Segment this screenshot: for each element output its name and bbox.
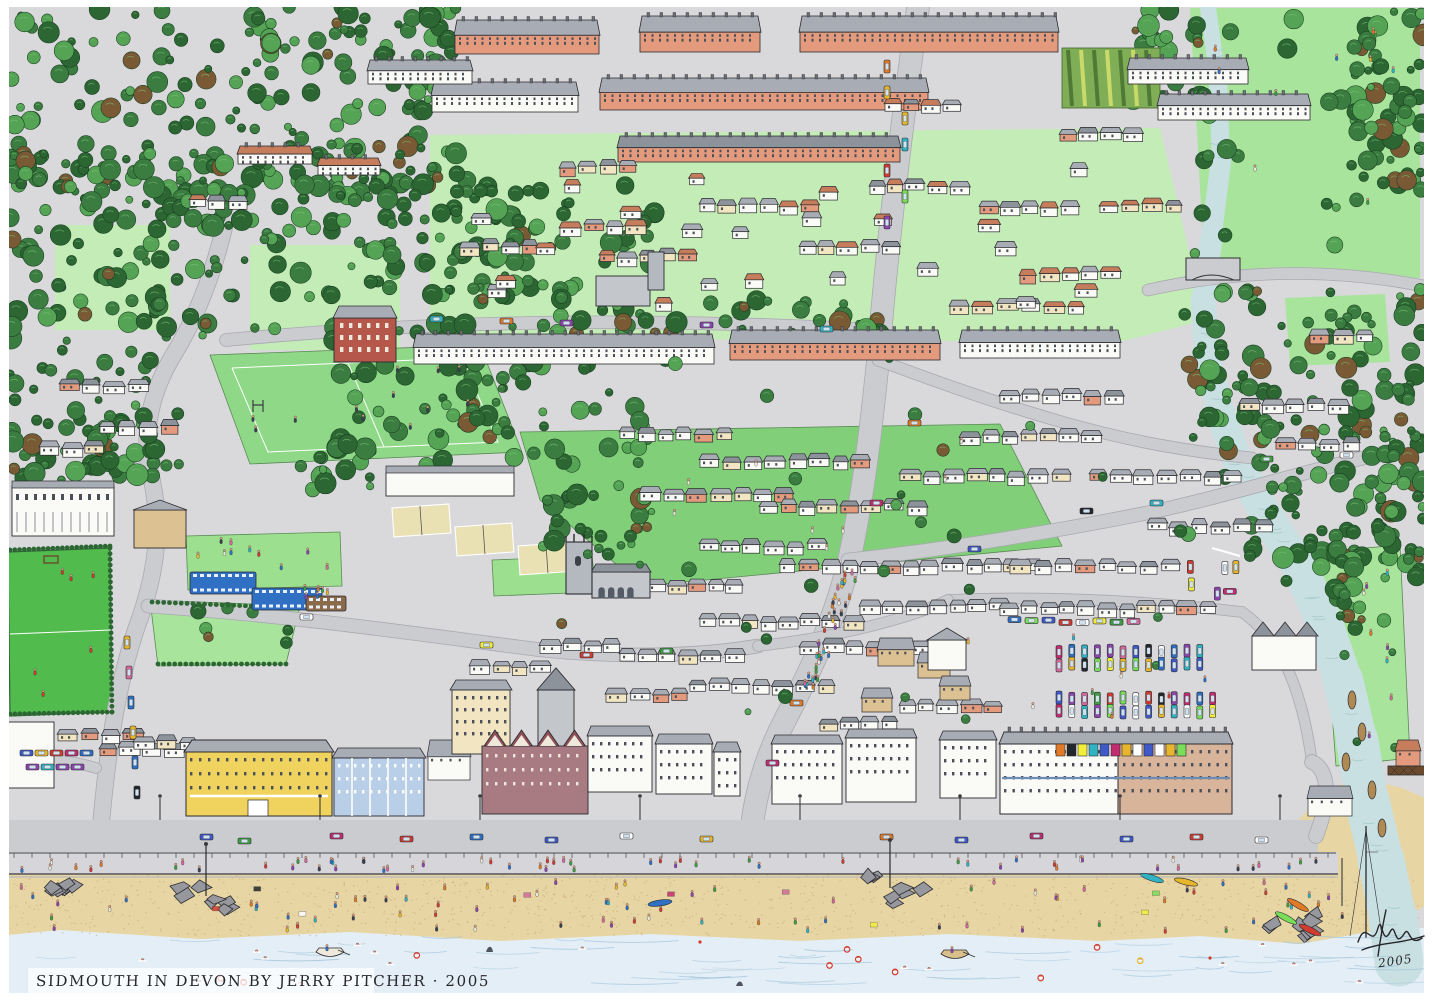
map-drawing bbox=[0, 0, 1433, 1000]
signature-scribble bbox=[1352, 898, 1430, 982]
artist-signature: 2005 bbox=[1352, 898, 1430, 982]
pictorial-map-artwork: SIDMOUTH IN DEVON BY JERRY PITCHER · 200… bbox=[0, 0, 1433, 1000]
caption-title: SIDMOUTH IN DEVON BY JERRY PITCHER · 200… bbox=[36, 972, 491, 990]
